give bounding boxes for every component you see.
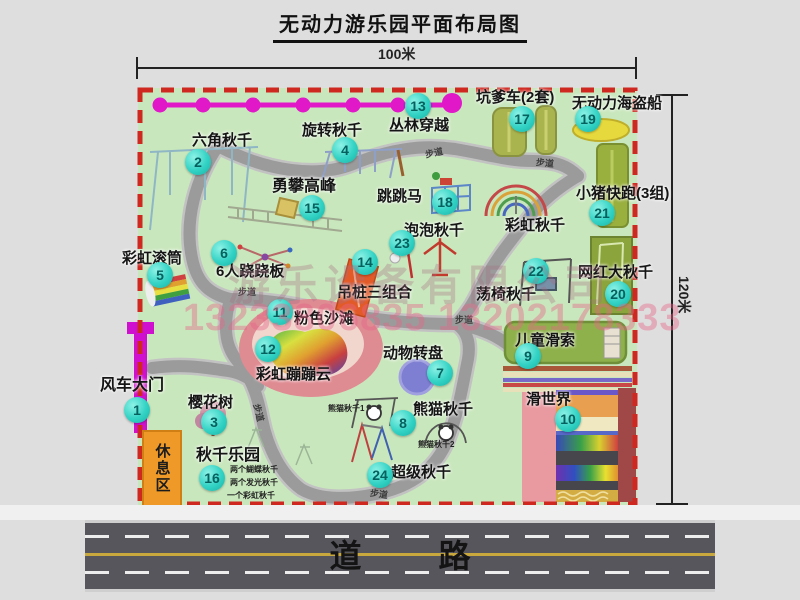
walkway-label-5: 步道	[369, 486, 389, 501]
width-dimension-label: 100米	[378, 44, 415, 64]
walkway-label-6: 步道	[455, 313, 473, 326]
label-rainbow-cloud: 彩虹蹦蹦云	[256, 367, 331, 383]
label-chair-swing: 荡椅秋千	[476, 287, 536, 303]
park-layout-screenshot: 无动力游乐园平面布局图 100米 120米 休息区 风车大门 六角秋千 樱花树 …	[0, 0, 800, 600]
badge-8: 8	[390, 410, 416, 436]
height-dimension-label: 120米	[674, 276, 694, 313]
badge-17: 17	[509, 106, 535, 132]
label-piggy-run: 小猪快跑(3组)	[576, 186, 669, 202]
badge-4: 4	[332, 137, 358, 163]
badge-18: 18	[432, 189, 458, 215]
label-swing-park-1: 两个蝴蝶秋千	[230, 466, 278, 475]
label-swing-park-2: 两个发光秋千	[230, 479, 278, 488]
width-tick-left	[136, 57, 138, 79]
label-pit-cars: 坑爹车(2套)	[476, 90, 554, 106]
label-swing-park-3: 一个彩虹秋千	[227, 492, 275, 501]
label-hex-swing: 六角秋千	[192, 133, 252, 149]
badge-22: 22	[523, 258, 549, 284]
badge-23: 23	[389, 230, 415, 256]
road: 道 路	[85, 520, 715, 592]
label-windmill-gate: 风车大门	[100, 378, 164, 395]
sidewalk-strip	[0, 505, 800, 520]
label-climb-peak: 勇攀高峰	[272, 179, 336, 196]
badge-5: 5	[147, 262, 173, 288]
walkway-label-3: 步道	[238, 285, 256, 298]
rest-area-label: 休息区	[152, 443, 173, 494]
label-panda-swing: 熊猫秋千	[413, 402, 473, 418]
walkway-label-2: 步道	[535, 155, 554, 170]
badge-24: 24	[367, 462, 393, 488]
badge-3: 3	[201, 409, 227, 435]
badge-16: 16	[199, 465, 225, 491]
label-pink-beach: 粉色沙滩	[294, 311, 354, 327]
height-dimension-line	[671, 95, 673, 505]
label-seesaw6: 6人跷跷板	[216, 264, 284, 280]
label-big-swing: 网红大秋千	[578, 265, 653, 281]
label-rainbow-swing: 彩虹秋千	[505, 218, 565, 234]
badge-9: 9	[515, 343, 541, 369]
page-title: 无动力游乐园平面布局图	[273, 8, 527, 43]
label-panda-swing-1: 熊猫秋千1	[328, 405, 364, 414]
badge-2: 2	[185, 149, 211, 175]
badge-21: 21	[589, 200, 615, 226]
label-super-swing: 超级秋千	[391, 465, 451, 481]
road-label: 道 路	[85, 531, 715, 577]
label-swing-park: 秋千乐园	[196, 448, 260, 465]
page-title-wrap: 无动力游乐园平面布局图	[0, 8, 800, 43]
badge-12: 12	[255, 336, 281, 362]
badge-20: 20	[605, 281, 631, 307]
label-animal-wheel: 动物转盘	[383, 346, 443, 362]
label-hang-piles: 吊桩三组合	[337, 285, 412, 301]
badge-19: 19	[575, 106, 601, 132]
badge-15: 15	[299, 195, 325, 221]
width-dimension-line	[137, 67, 637, 69]
badge-14: 14	[352, 249, 378, 275]
badge-13: 13	[405, 93, 431, 119]
badge-7: 7	[427, 360, 453, 386]
badge-6: 6	[211, 240, 237, 266]
label-jump-horse: 跳跳马	[377, 189, 422, 205]
label-panda-swing-2: 熊猫秋千2	[418, 441, 454, 450]
badge-1: 1	[124, 397, 150, 423]
badge-11: 11	[267, 299, 293, 325]
width-tick-right	[635, 57, 637, 79]
rest-area: 休息区	[142, 430, 182, 507]
badge-10: 10	[555, 406, 581, 432]
label-jungle-cross: 丛林穿越	[389, 118, 449, 134]
label-rotate-swing: 旋转秋千	[302, 123, 362, 139]
